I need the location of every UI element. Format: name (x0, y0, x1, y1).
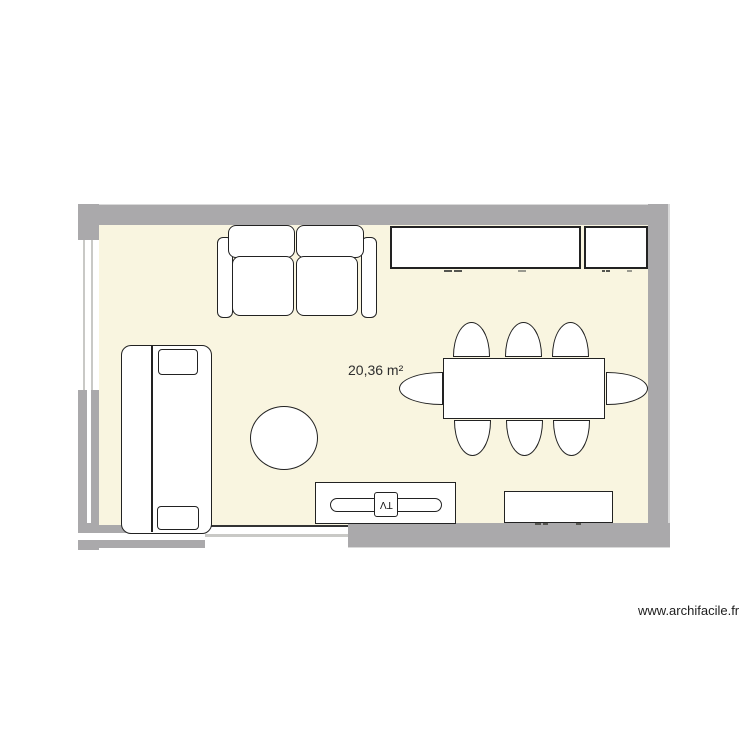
mark (627, 270, 632, 272)
tv-label-box: TV (374, 492, 398, 517)
floorplan-canvas: TV 20,36 m² www.archifacile.fr (0, 0, 750, 750)
mark (444, 270, 452, 272)
left-wall-glazing-line (87, 390, 91, 523)
watermark: www.archifacile.fr (638, 603, 739, 618)
daybed-cushion-top (158, 349, 198, 375)
wall-right (648, 204, 670, 548)
wall-cabinet-small (584, 226, 648, 269)
wall-cabinet-long (390, 226, 581, 269)
sofa-seat-cushion-right (296, 256, 358, 316)
mark (576, 523, 581, 525)
window-glass-line (91, 240, 93, 390)
wall-top (78, 204, 670, 225)
sideboard (504, 491, 613, 523)
mark (606, 270, 610, 272)
bottom-glazed-bay-panel (57, 533, 205, 540)
mark (543, 523, 548, 525)
window-glass-line (83, 240, 85, 390)
daybed-cushion-bottom (157, 506, 199, 530)
sofa-back-cushion-right (296, 225, 364, 258)
sofa-back-cushion-left (228, 225, 295, 258)
daybed-back-divider (151, 346, 153, 532)
mark (518, 270, 526, 272)
daybed (121, 345, 212, 534)
tv-label: TV (380, 499, 393, 510)
room-area-label: 20,36 m² (348, 362, 403, 378)
mark (454, 270, 462, 272)
mark (535, 523, 541, 525)
bottom-window-glass-line (205, 534, 348, 537)
wall-bottom-right (348, 523, 670, 548)
sofa-seat-cushion-left (232, 256, 294, 316)
round-side-table (250, 406, 318, 470)
mark (602, 270, 605, 272)
dining-table (443, 358, 605, 419)
window-left (78, 240, 99, 390)
bottom-window (205, 525, 348, 547)
